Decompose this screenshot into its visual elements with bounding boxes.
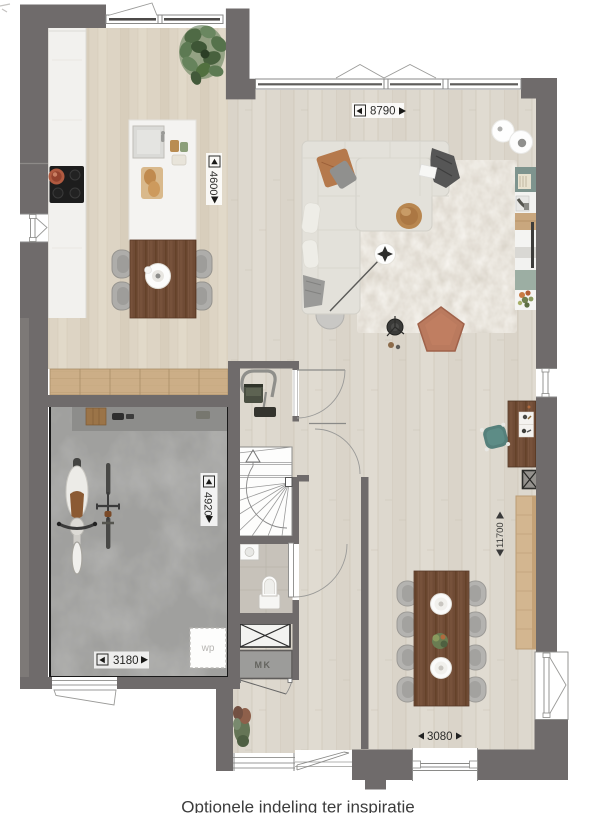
svg-text:8790: 8790 [370,106,396,118]
svg-text:3180: 3180 [113,655,139,667]
svg-text:11700: 11700 [495,522,506,548]
svg-text:MK: MK [255,660,272,670]
svg-text:4600: 4600 [207,171,219,195]
svg-text:3080: 3080 [427,731,453,743]
svg-text:wp: wp [201,643,215,654]
svg-text:4920: 4920 [202,492,214,516]
svg-text:Optionele indeling ter inspira: Optionele indeling ter inspiratie [181,798,414,814]
